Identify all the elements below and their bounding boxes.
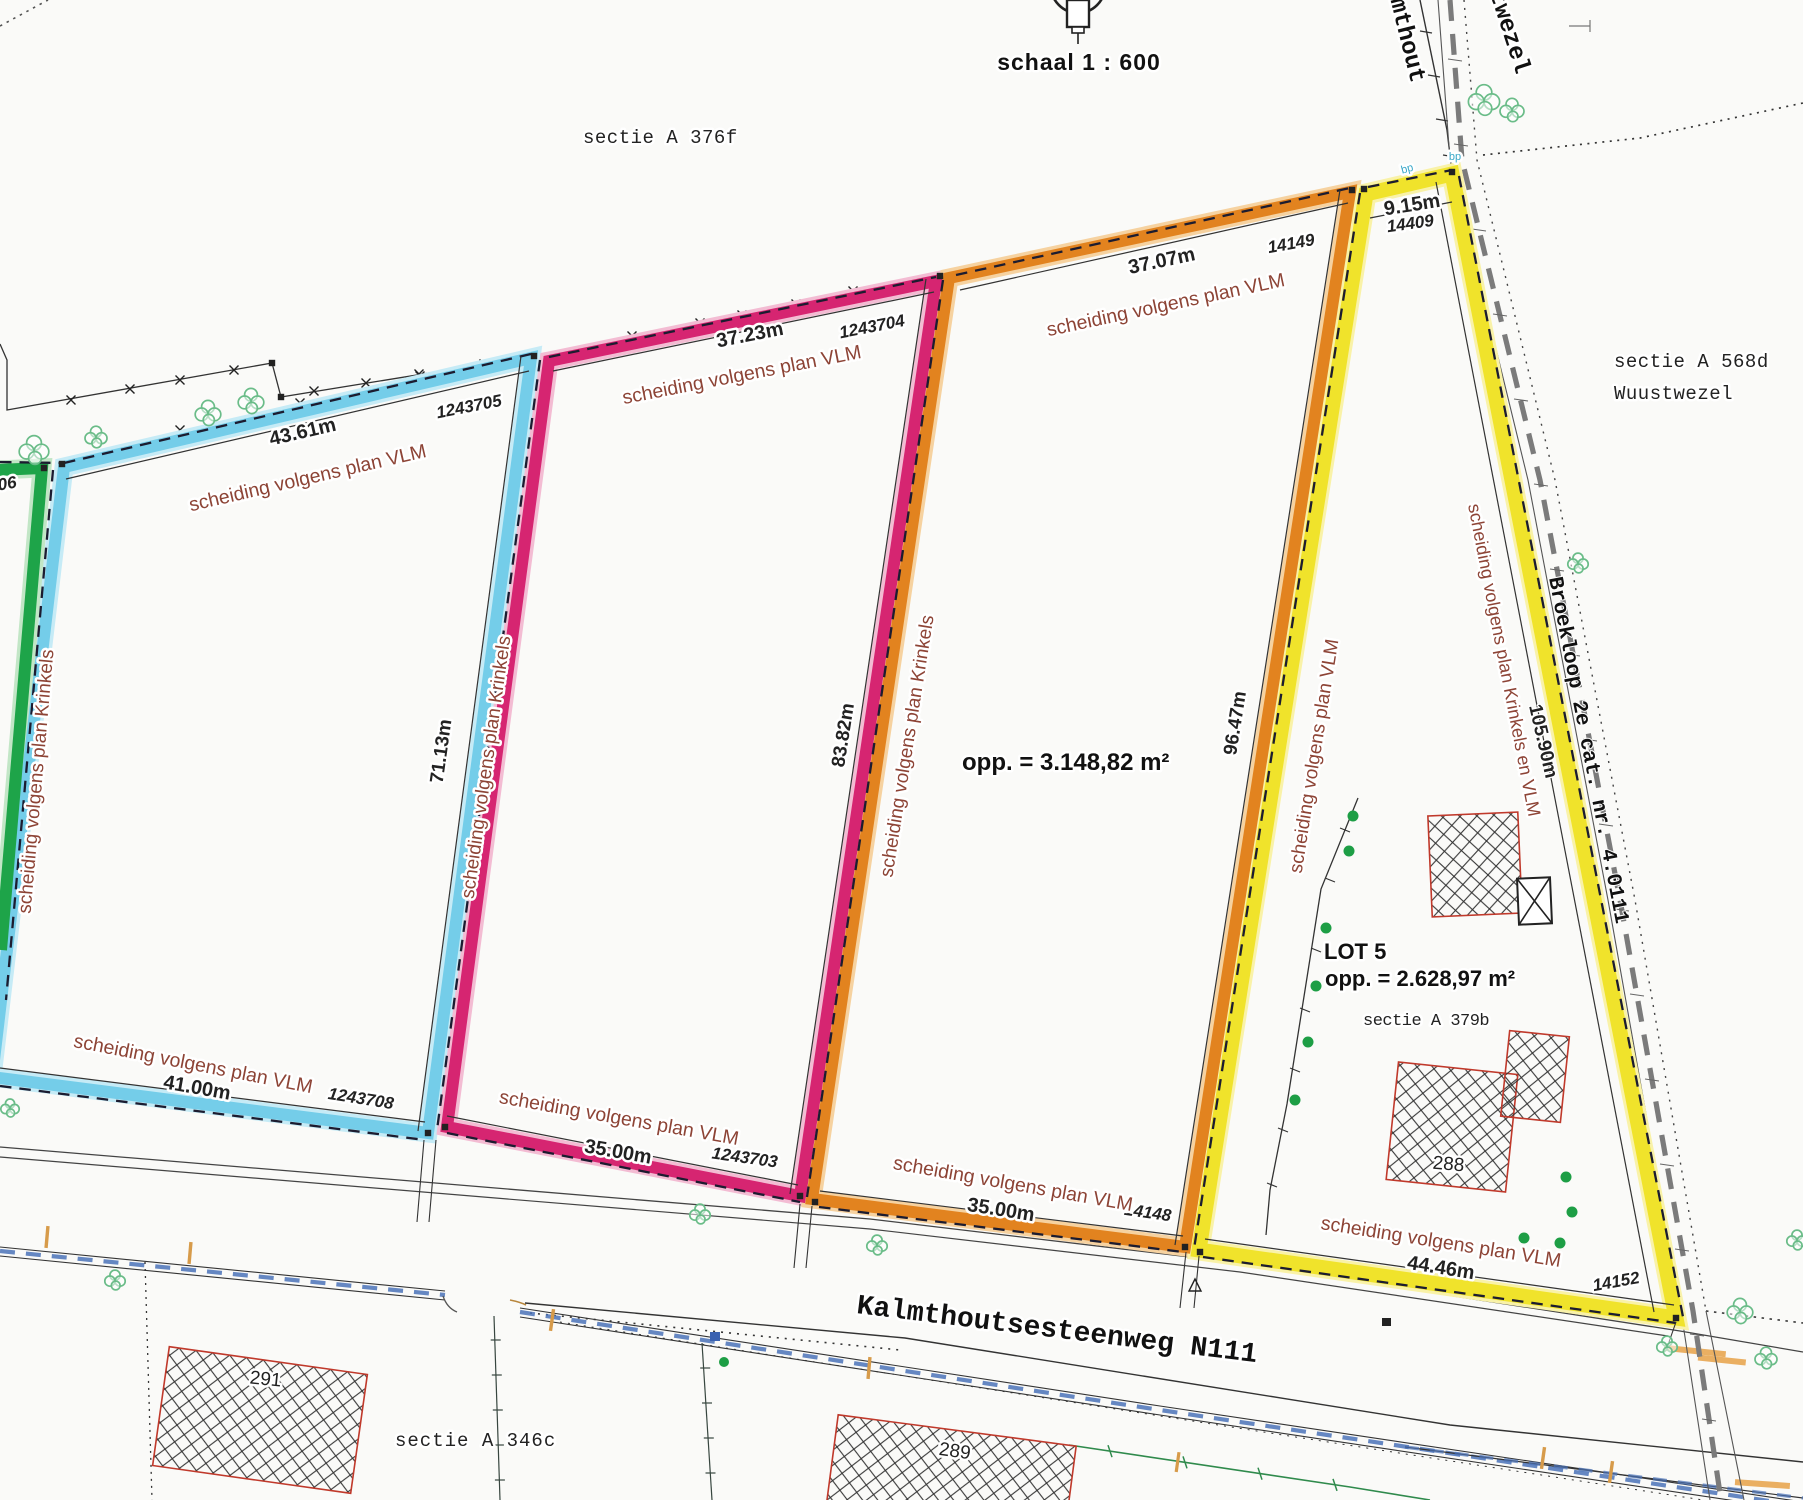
svg-text:sectie A 379b: sectie A 379b [1363, 1012, 1489, 1031]
svg-text:opp. = 2.628,97 m²: opp. = 2.628,97 m² [1325, 966, 1515, 991]
svg-text:291: 291 [249, 1367, 283, 1391]
svg-text:288: 288 [1432, 1153, 1465, 1177]
svg-text:sectie A 376f: sectie A 376f [583, 127, 738, 149]
svg-text:Wuustwezel: Wuustwezel [1614, 383, 1733, 405]
svg-text:schaal 1 : 600: schaal 1 : 600 [997, 49, 1161, 75]
svg-text:sectie A 346c: sectie A 346c [395, 1430, 556, 1452]
svg-text:sectie A 568d: sectie A 568d [1614, 351, 1769, 373]
svg-text:opp. = 3.148,82 m²: opp. = 3.148,82 m² [962, 749, 1169, 776]
svg-text:289: 289 [938, 1439, 972, 1464]
svg-text:LOT 5: LOT 5 [1324, 939, 1386, 964]
svg-text:bp: bp [1449, 151, 1461, 163]
